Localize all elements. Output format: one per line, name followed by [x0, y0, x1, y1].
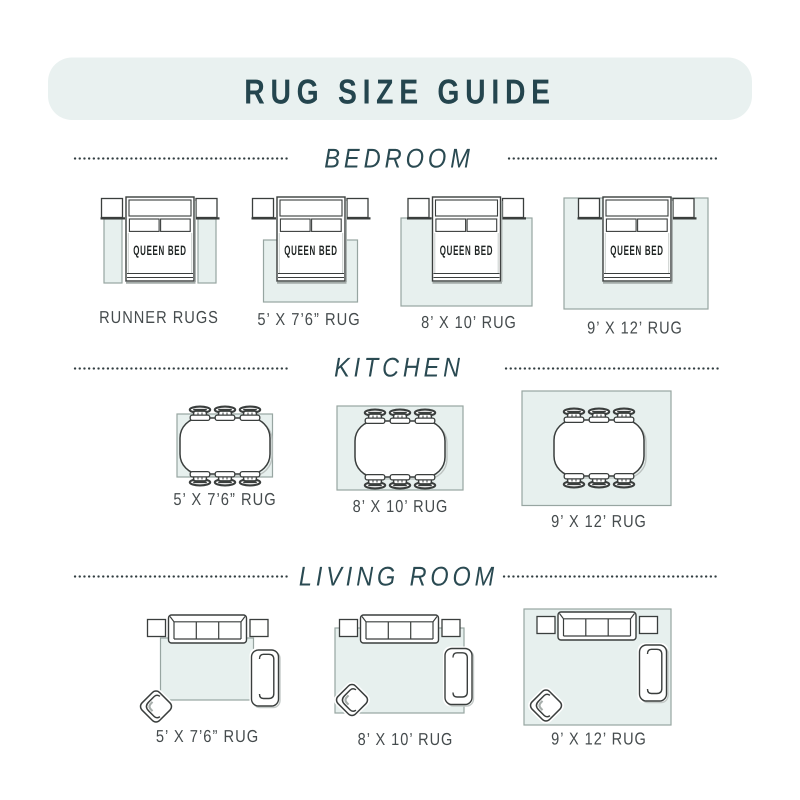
svg-text:5’ X 7’6” RUG: 5’ X 7’6” RUG [156, 726, 259, 746]
svg-text:9’ X 12’ RUG: 9’ X 12’ RUG [551, 511, 647, 531]
svg-text:8’ X 10’ RUG: 8’ X 10’ RUG [421, 312, 517, 332]
svg-text:KITCHEN: KITCHEN [334, 353, 464, 383]
svg-text:RUNNER RUGS: RUNNER RUGS [99, 307, 219, 327]
svg-text:RUG SIZE GUIDE: RUG SIZE GUIDE [244, 73, 555, 112]
svg-text:9’ X 12’ RUG: 9’ X 12’ RUG [587, 318, 683, 338]
svg-text:8’ X 10’ RUG: 8’ X 10’ RUG [358, 729, 454, 749]
svg-text:BEDROOM: BEDROOM [324, 144, 474, 174]
svg-text:5’ X 7’6” RUG: 5’ X 7’6” RUG [173, 489, 276, 509]
svg-text:5’ X 7’6” RUG: 5’ X 7’6” RUG [257, 309, 360, 329]
svg-text:9’ X 12’ RUG: 9’ X 12’ RUG [551, 729, 647, 749]
svg-text:LIVING ROOM: LIVING ROOM [299, 562, 498, 592]
svg-text:8’ X 10’ RUG: 8’ X 10’ RUG [353, 496, 449, 516]
